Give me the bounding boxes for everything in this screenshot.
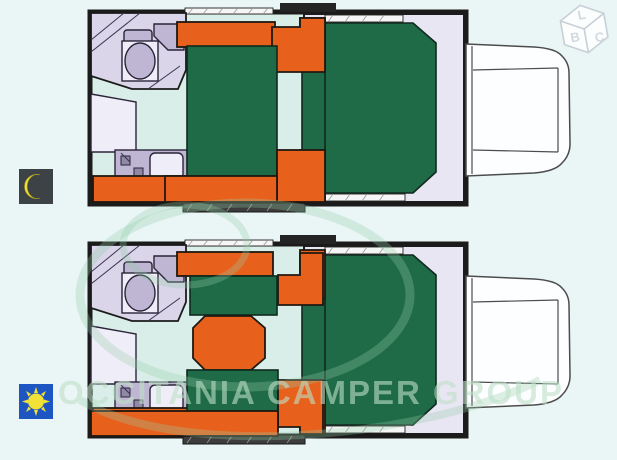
sun-icon — [19, 384, 53, 419]
day-floorplan — [90, 235, 570, 444]
floorplan-canvas — [0, 0, 617, 460]
camper-shell — [90, 3, 570, 212]
seatback-block-front — [272, 18, 325, 72]
night-floorplan — [90, 3, 570, 212]
night-legend-tile — [19, 169, 53, 204]
day-legend-tile — [19, 384, 53, 419]
lbc-cube-logo: L B C — [552, 0, 616, 60]
dinette-bed — [187, 46, 277, 176]
bench-seat-center — [165, 176, 277, 202]
seatback-block-rear — [277, 150, 325, 202]
overhead-locker — [177, 22, 275, 47]
moon-icon — [19, 169, 53, 204]
dinette-table — [193, 316, 265, 370]
dinette-seat-rear — [187, 370, 278, 413]
camper-floorplan-brochure: { "watermark": { "text": "OCCITANIA CAMP… — [0, 0, 617, 460]
